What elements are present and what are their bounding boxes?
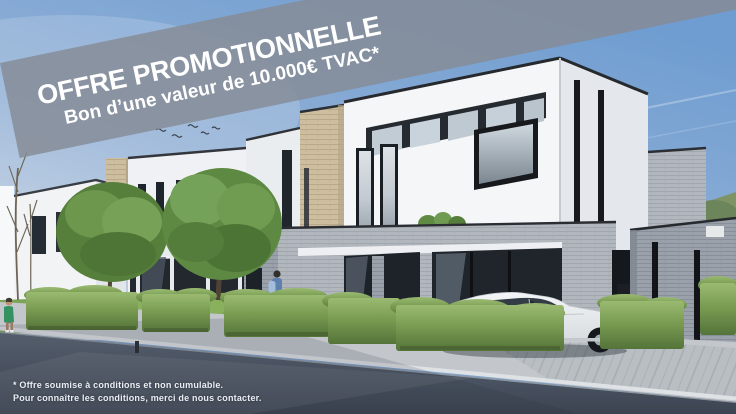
hedge-block [24,285,138,330]
legal-footnote: * Offre soumise à conditions et non cumu… [13,379,262,404]
footnote-line-1: * Offre soumise à conditions et non cumu… [13,379,262,392]
slit-window [574,80,580,238]
window [32,216,46,254]
hedge-block [136,288,217,332]
slit-window [694,250,700,346]
hedge-block-corner [698,276,736,335]
tall-window [282,150,292,232]
footnote-line-2: Pour connaître les conditions, merci de … [13,392,262,405]
hedge-block [322,292,400,344]
promo-poster: OFFRE PROMOTIONNELLE Bon d’une valeur de… [0,0,736,414]
hedge-block [220,288,330,337]
hedge-block-front-of-car [390,297,565,351]
bollard [135,341,139,353]
vent-panel [706,226,724,237]
hedge-block-right-of-car [597,294,687,349]
